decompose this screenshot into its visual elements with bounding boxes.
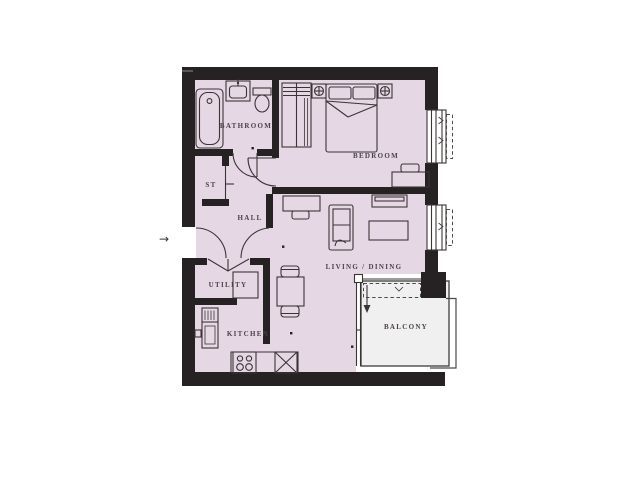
entry-arrow-icon: → bbox=[159, 232, 169, 246]
living-window bbox=[427, 205, 453, 250]
label-living-dining: LIVING / DINING bbox=[326, 263, 403, 271]
label-storage: ST bbox=[205, 181, 216, 189]
label-kitchen: KITCHEN bbox=[227, 330, 269, 338]
label-bathroom: BATHROOM bbox=[220, 122, 272, 130]
label-balcony: BALCONY bbox=[384, 323, 428, 331]
label-utility: UTILITY bbox=[209, 281, 248, 289]
balcony-door-post bbox=[355, 275, 363, 283]
floorplan-drawing: BATHROOM BEDROOM ST HALL UTILITY KITCHEN… bbox=[0, 0, 640, 480]
label-bedroom: BEDROOM bbox=[353, 152, 399, 160]
bedroom-window bbox=[427, 110, 453, 163]
floorplan-page: BATHROOM BEDROOM ST HALL UTILITY KITCHEN… bbox=[0, 0, 640, 480]
label-hall: HALL bbox=[237, 214, 262, 222]
